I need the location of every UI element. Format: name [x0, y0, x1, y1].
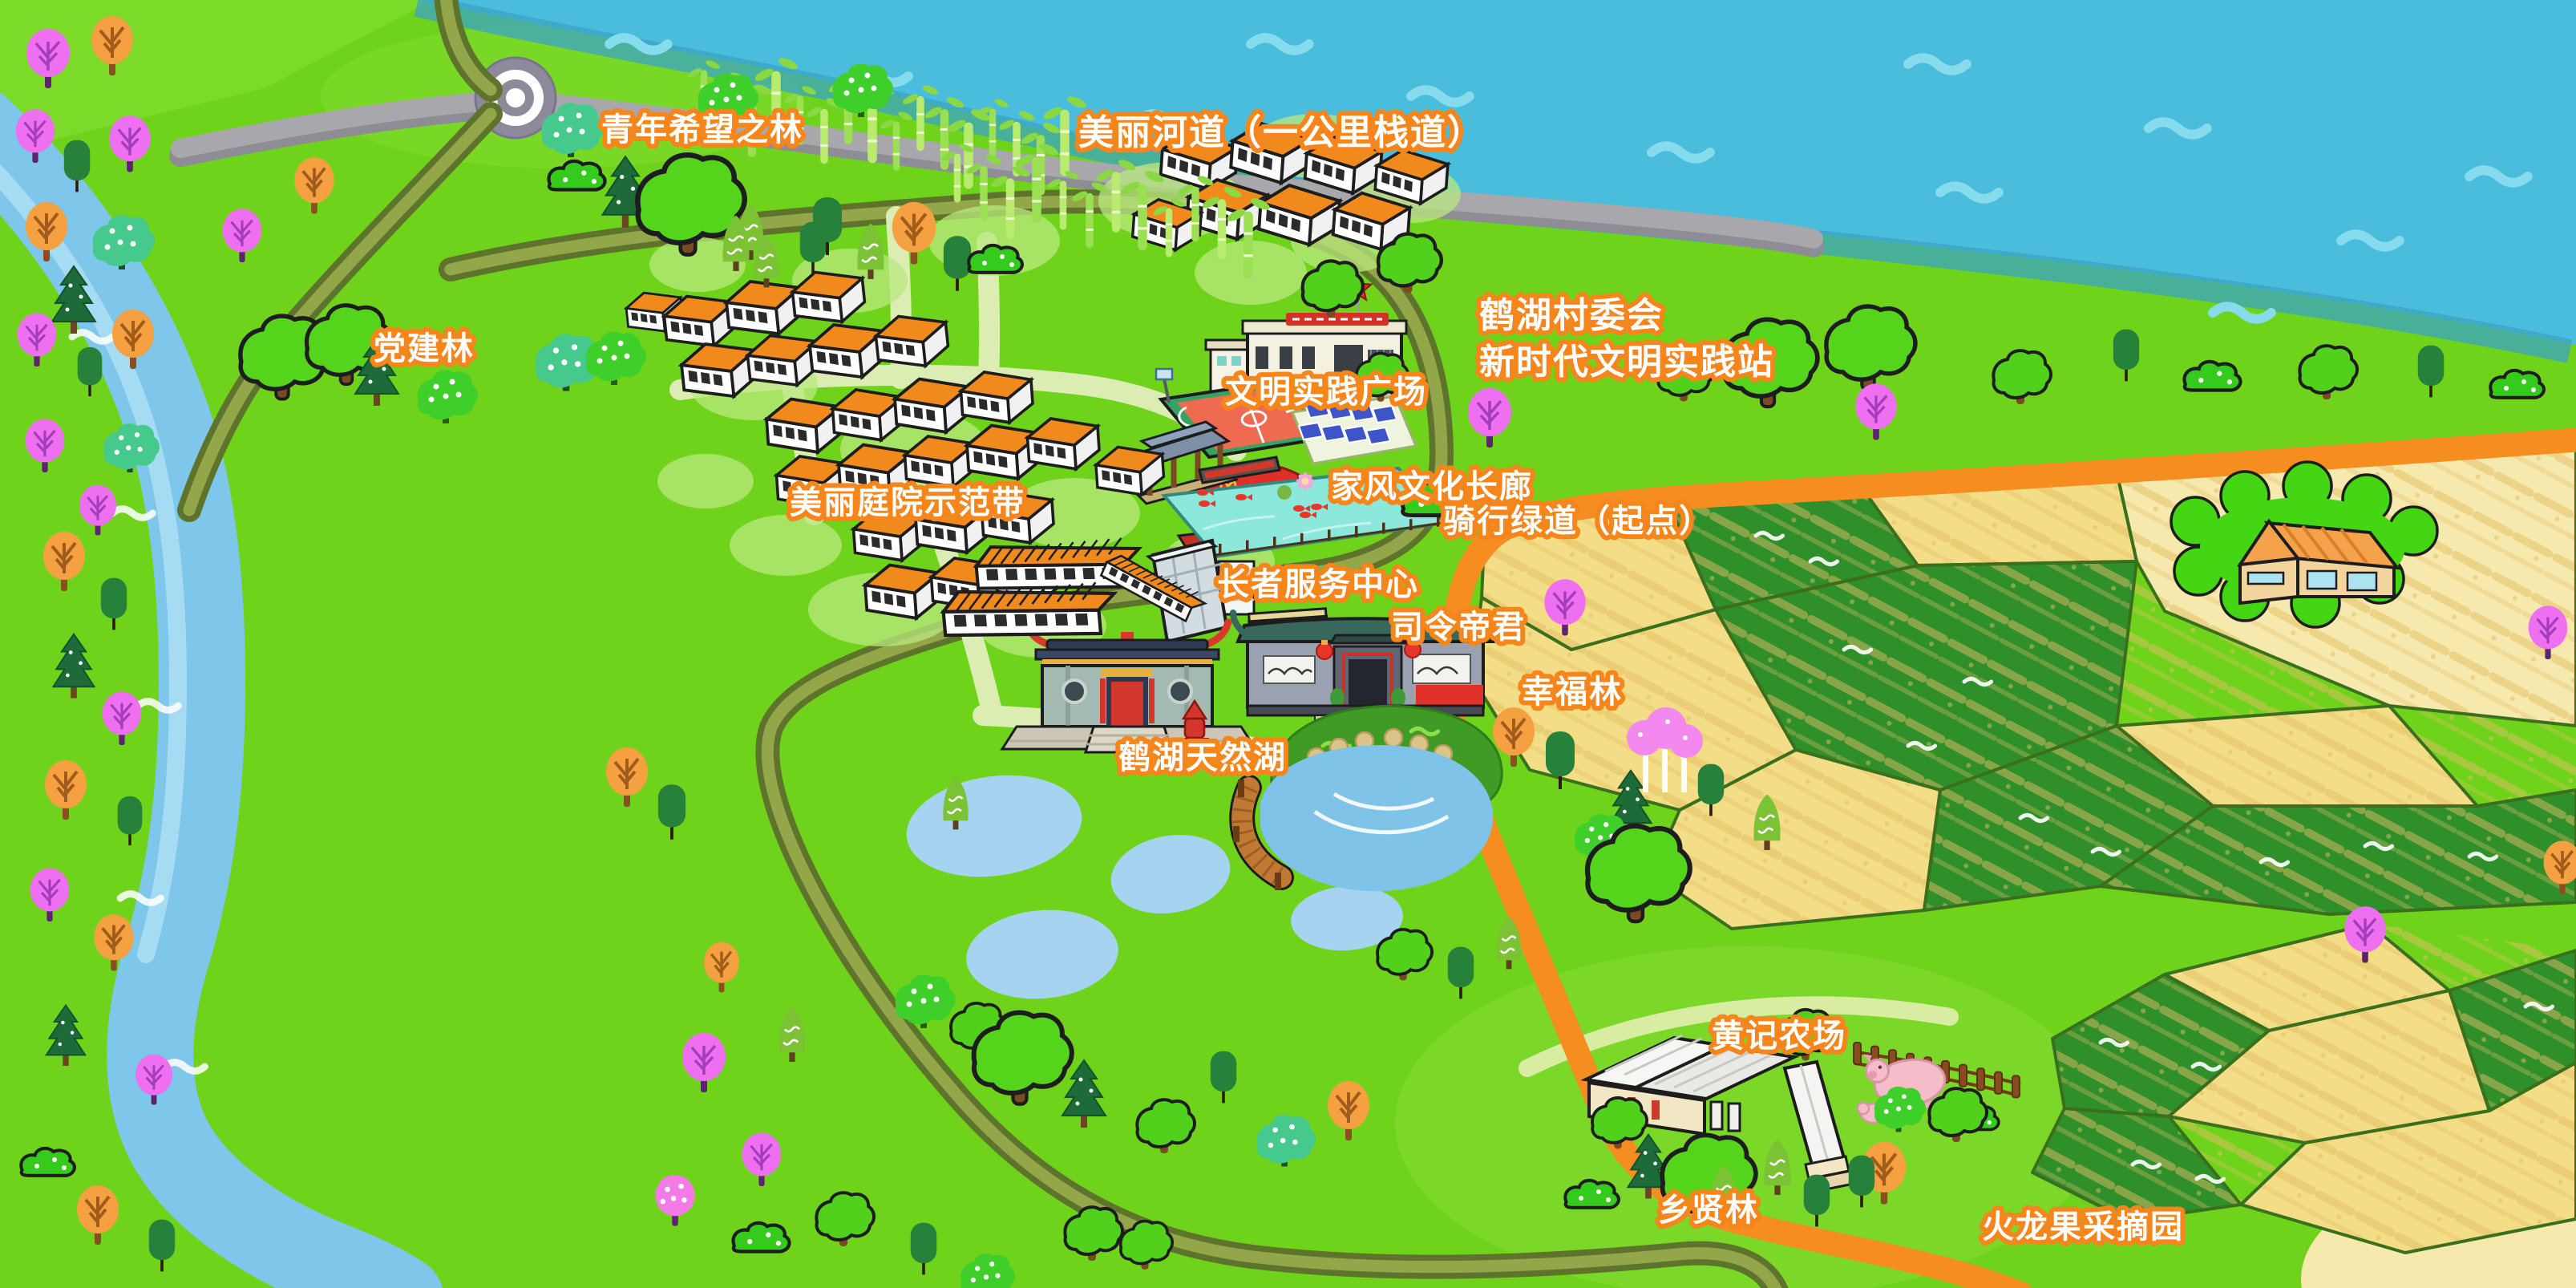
label-family-culture-corridor: 家风文化长廊 [1331, 469, 1533, 504]
label-beautiful-courtyard-belt: 美丽庭院示范带 [790, 485, 1025, 520]
label-beautiful-river: 美丽河道（一公里栈道） [1078, 113, 1484, 152]
label-cycling-greenway-start: 骑行绿道（起点） [1443, 504, 1713, 539]
label-huangji-farm: 黄记农场 [1712, 1019, 1846, 1054]
label-happiness-forest: 幸福林 [1522, 674, 1623, 710]
label-siling-dijun: 司令帝君 [1391, 610, 1526, 645]
hand-drawn-village-map: 青年希望之林 美丽河道（一公里栈道） 党建林 鹤湖村委会 新时代文明实践站 文明… [0, 0, 2576, 1288]
label-village-committee-line1: 鹤湖村委会 [1479, 296, 1664, 335]
label-hehu-natural-lake: 鹤湖天然湖 [1118, 740, 1287, 776]
label-village-committee-line2: 新时代文明实践站 [1479, 342, 1774, 382]
label-party-building-forest: 党建林 [374, 331, 475, 367]
label-village-sage-forest: 乡贤林 [1658, 1193, 1759, 1228]
label-civilization-practice-square: 文明实践广场 [1225, 375, 1427, 410]
label-elderly-service-center: 长者服务中心 [1217, 567, 1419, 602]
label-youth-hope-forest: 青年希望之林 [601, 112, 803, 148]
label-dragon-fruit-picking-garden: 火龙果采摘园 [1982, 1209, 2184, 1245]
